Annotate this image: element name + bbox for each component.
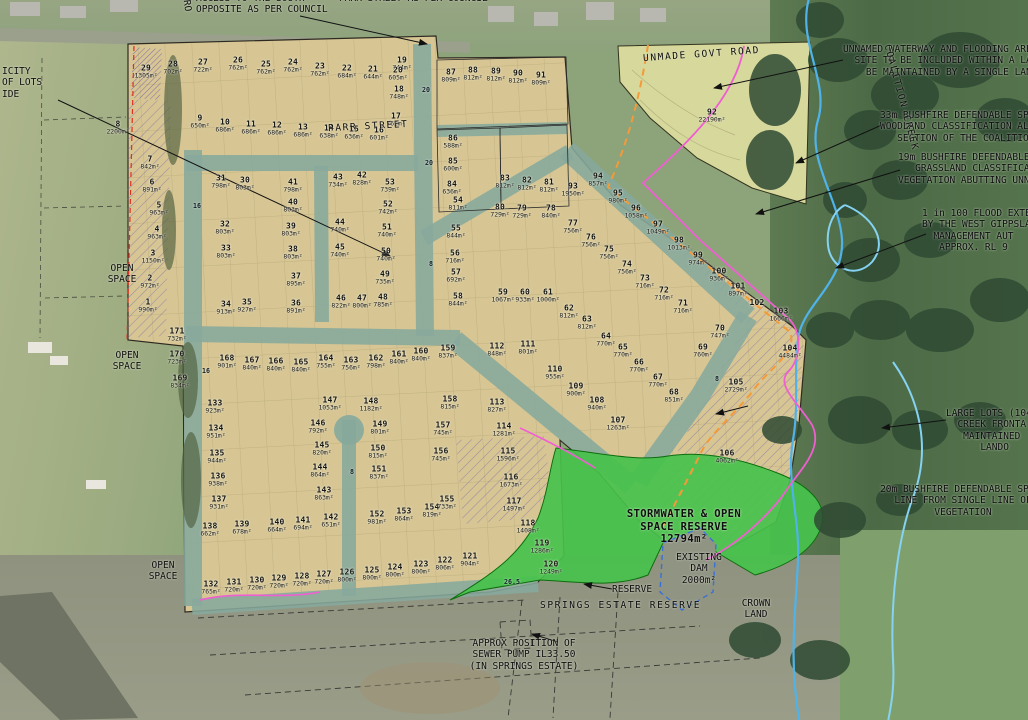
annotation-council-note: ACCESS TO THE SOUTH PARR STREET AS PER C…: [196, 0, 488, 16]
lot-label-119: 1191286m²: [530, 540, 553, 555]
lot-label-80: 80729m²: [490, 204, 509, 219]
lot-label-171: 171732m²: [167, 328, 186, 343]
lot-area: 800m²: [385, 572, 404, 579]
lot-area: 756m²: [617, 269, 636, 276]
lot-label-60: 60933m²: [515, 289, 534, 304]
road-width-label: 8: [715, 375, 719, 383]
annotation-line: PARR STREET: [328, 119, 409, 135]
lot-label-36: 36891m²: [286, 300, 305, 315]
lot-area: 840m²: [291, 367, 310, 374]
lot-label-27: 27722m²: [193, 59, 212, 74]
lot-area: 803m²: [283, 254, 302, 261]
lot-label-54: 54811m²: [448, 197, 467, 212]
lot-label-121: 121904m²: [460, 553, 479, 568]
lot-label-71: 71716m²: [673, 300, 692, 315]
lot-area: 864m²: [310, 472, 329, 479]
lot-label-132: 132765m²: [201, 581, 220, 596]
lot-area: 720m²: [292, 581, 311, 588]
annotation-line: SITE TO BE INCLUDED WITHIN A LARGE: [843, 55, 1028, 66]
lot-area: 803m²: [215, 229, 234, 236]
lot-label-6: 6891m²: [142, 179, 161, 194]
lot-label-109: 109900m²: [566, 383, 585, 398]
annotation-line: OPEN: [113, 350, 142, 361]
lot-label-89: 89812m²: [486, 68, 505, 83]
labels-layer: 1990m²2972m²31150m²4963m²5963m²6891m²784…: [0, 0, 1028, 720]
lot-area: 785m²: [373, 302, 392, 309]
lot-label-144: 144864m²: [310, 464, 329, 479]
lot-label-150: 150815m²: [368, 445, 387, 460]
annotation-open-space-2: OPENSPACE: [113, 350, 142, 373]
lot-label-76: 76756m²: [581, 234, 600, 249]
lot-label-47: 47800m²: [352, 295, 371, 310]
lot-label-8: 82200m²: [106, 121, 129, 136]
lot-label-22: 22684m²: [337, 65, 356, 80]
lot-label-111: 111801m²: [518, 341, 537, 356]
lot-label-107: 1071263m²: [606, 417, 629, 432]
lot-area: 837m²: [438, 353, 457, 360]
lot-area: 891m²: [142, 187, 161, 194]
lot-label-130: 130720m²: [247, 577, 266, 592]
lot-label-145: 145820m²: [312, 442, 331, 457]
annotation-line: LARGE LOTS (104,: [946, 408, 1028, 419]
lot-label-158: 158815m²: [440, 396, 459, 411]
lot-label-21: 21644m²: [363, 66, 382, 81]
lot-area: 800m²: [362, 575, 381, 582]
lot-label-160: 160840m²: [411, 348, 430, 363]
lot-label-79: 79729m²: [512, 205, 531, 220]
lot-area: 1058m²: [624, 213, 647, 220]
lot-label-100: 100936m²: [709, 268, 728, 283]
lot-area: 735m²: [375, 279, 394, 286]
lot-area: 1182m²: [359, 406, 382, 413]
lot-area: 2200m²: [106, 129, 129, 136]
lot-area: 733m²: [437, 504, 456, 511]
lot-label-148: 1481182m²: [359, 398, 382, 413]
lot-area: 745m²: [433, 430, 452, 437]
lot-area: 678m²: [232, 529, 251, 536]
lot-area: 1596m²: [496, 456, 519, 463]
lot-area: 834m²: [170, 383, 189, 390]
lot-label-83: 83812m²: [495, 175, 514, 190]
lot-label-155: 155733m²: [437, 496, 456, 511]
annotation-existing-dam-label: EXISTINGDAM2000m²: [676, 552, 722, 586]
lot-label-9: 9650m²: [190, 115, 209, 130]
lot-area: 963m²: [149, 210, 168, 217]
lot-label-93: 931950m²: [561, 183, 584, 198]
lot-area: 840m²: [266, 366, 285, 373]
lot-label-11: 11686m²: [241, 121, 260, 136]
lot-area: 716m²: [635, 283, 654, 290]
lot-area: 837m²: [369, 474, 388, 481]
lot-area: 716m²: [673, 308, 692, 315]
lot-area: 809m²: [531, 80, 550, 87]
lot-label-134: 134951m²: [206, 425, 225, 440]
lot-label-70: 70747m²: [710, 325, 729, 340]
lot-label-58: 58844m²: [448, 293, 467, 308]
lot-label-115: 1151596m²: [496, 448, 519, 463]
lot-label-61: 611000m²: [536, 289, 559, 304]
annotation-line: MAINTAINED: [946, 431, 1028, 442]
road-width-label: 16: [202, 367, 210, 375]
lot-area: 1286m²: [530, 548, 553, 555]
lot-area: 720m²: [224, 587, 243, 594]
annotation-line: UNNAMED WATERWAY AND FLOODING AREA: [843, 44, 1028, 55]
lot-area: 812m²: [463, 75, 482, 82]
lot-area: 842m²: [140, 164, 159, 171]
lot-area: 723m²: [167, 359, 186, 366]
lot-label-20: 20605m²: [388, 67, 407, 82]
lot-area: 729m²: [512, 213, 531, 220]
lot-label-126: 126800m²: [337, 569, 356, 584]
lot-label-149: 149801m²: [370, 421, 389, 436]
lot-label-72: 72716m²: [654, 287, 673, 302]
lot-area: 798m²: [211, 183, 230, 190]
lot-area: 851m²: [664, 397, 683, 404]
lot-label-50: 50740m²: [376, 248, 395, 263]
lot-label-159: 159837m²: [438, 345, 457, 360]
lot-area: 803m²: [283, 207, 302, 214]
lot-area: 662m²: [200, 531, 219, 538]
lot-label-52: 52742m²: [378, 201, 397, 216]
lot-label-32: 32803m²: [215, 221, 234, 236]
road-width-label: 16: [193, 202, 201, 210]
lot-label-120: 1201249m²: [539, 561, 562, 576]
lot-area: 762m²: [283, 67, 302, 74]
lot-label-74: 74756m²: [617, 261, 636, 276]
annotation-line: RESERVE: [612, 584, 652, 595]
annotation-line: 12794m²: [627, 533, 741, 546]
lot-area: 2729m²: [724, 387, 747, 394]
lot-area: 809m²: [441, 77, 460, 84]
lot-area: 800m²: [337, 577, 356, 584]
lot-label-10: 10686m²: [215, 119, 234, 134]
lot-area: 729m²: [490, 212, 509, 219]
annotation-reserve-label: RESERVE: [612, 584, 652, 595]
annotation-line: CROWN: [742, 598, 771, 609]
lot-label-84: 84636m²: [442, 181, 461, 196]
lot-area: 815m²: [440, 404, 459, 411]
lot-area: 747m²: [710, 333, 729, 340]
lot-area: 812m²: [486, 76, 505, 83]
annotation-crown-land-label: CROWNLAND: [742, 598, 771, 621]
annotation-line: UNMADE GOVT ROAD: [643, 45, 761, 65]
lot-label-95: 95980m²: [608, 190, 627, 205]
annotation-line: LINE FROM SINGLE LINE OF: [880, 495, 1028, 506]
lot-label-59: 591067m²: [491, 289, 514, 304]
lot-area: 923m²: [205, 408, 224, 415]
lot-area: 974m²: [688, 260, 707, 267]
lot-area: 863m²: [314, 495, 333, 502]
annotation-waterway-note: UNNAMED WATERWAY AND FLOODING AREA SITE …: [843, 44, 1028, 78]
lot-label-127: 127720m²: [314, 571, 333, 586]
annotation-line: SPACE: [149, 571, 178, 582]
lot-area: 716m²: [654, 295, 673, 302]
lot-number: 102: [749, 299, 764, 307]
lot-area: 740m²: [330, 227, 349, 234]
road-width-label: 8: [429, 260, 433, 268]
lot-label-18: 18748m²: [389, 86, 408, 101]
lot-label-117: 1171497m²: [502, 498, 525, 513]
lot-area: 745m²: [431, 456, 450, 463]
lot-label-1: 1990m²: [138, 299, 157, 314]
lot-label-31: 31798m²: [211, 175, 230, 190]
lot-label-5: 5963m²: [149, 202, 168, 217]
lot-label-137: 137931m²: [209, 496, 228, 511]
lot-area: 938m²: [208, 481, 227, 488]
lot-area: 4062m²: [715, 458, 738, 465]
lot-area: 605m²: [388, 75, 407, 82]
annotation-sewer-pump-note: APPROX POSITION OFSEWER PUMP IL33.50(IN …: [470, 638, 579, 672]
lot-label-66: 66770m²: [629, 359, 648, 374]
lot-label-53: 53739m²: [380, 179, 399, 194]
annotation-line: OF LOTS: [2, 77, 42, 88]
lot-area: 686m²: [267, 130, 286, 137]
lot-label-99: 99974m²: [688, 252, 707, 267]
annotation-line: 1 in 100 FLOOD EXTEN: [922, 208, 1028, 219]
lot-label-128: 128720m²: [292, 573, 311, 588]
annotation-line: 19m BUSHFIRE DEFENDABLE S: [898, 152, 1028, 163]
lot-label-114: 1141281m²: [492, 423, 515, 438]
lot-area: 756m²: [599, 254, 618, 261]
lot-label-56: 56716m²: [445, 250, 464, 265]
annotation-line: OPEN: [149, 560, 178, 571]
annotation-line: SPACE: [108, 274, 137, 285]
lot-area: 972m²: [140, 283, 159, 290]
lot-label-170: 170723m²: [167, 351, 186, 366]
lot-label-108: 108940m²: [587, 397, 606, 412]
lot-area: 739m²: [380, 187, 399, 194]
lot-label-102: 102: [749, 299, 764, 307]
lot-area: 1263m²: [606, 425, 629, 432]
lot-area: 800m²: [352, 303, 371, 310]
annotation-open-space-3: OPENSPACE: [149, 560, 178, 583]
lot-area: 801m²: [518, 349, 537, 356]
lot-label-35: 35927m²: [237, 299, 256, 314]
annotation-line: 2000m²: [676, 575, 722, 586]
lot-label-62: 62812m²: [559, 305, 578, 320]
lot-area: 951m²: [206, 433, 225, 440]
lot-label-116: 1161673m²: [499, 474, 522, 489]
annotation-line: EXISTING: [676, 552, 722, 563]
lot-area: 792m²: [308, 428, 327, 435]
lot-area: 686m²: [215, 127, 234, 134]
lot-label-78: 78840m²: [541, 205, 560, 220]
lot-area: 895m²: [286, 281, 305, 288]
lot-area: 1408m²: [516, 528, 539, 535]
lot-area: 844m²: [448, 301, 467, 308]
lot-area: 762m²: [256, 69, 275, 76]
lot-area: 762m²: [228, 65, 247, 72]
annotation-line: (IN SPRINGS ESTATE): [470, 661, 579, 672]
lot-area: 748m²: [389, 94, 408, 101]
lot-label-43: 43734m²: [328, 174, 347, 189]
lot-area: 762m²: [310, 71, 329, 78]
lot-label-168: 168901m²: [217, 355, 236, 370]
lot-label-161: 161840m²: [389, 351, 408, 366]
lot-area: 636m²: [344, 134, 363, 141]
lot-area: 644m²: [363, 74, 382, 81]
lot-area: 936m²: [709, 276, 728, 283]
lot-label-48: 48785m²: [373, 294, 392, 309]
lot-label-88: 88812m²: [463, 67, 482, 82]
lot-label-135: 135944m²: [207, 450, 226, 465]
lot-area: 990m²: [138, 307, 157, 314]
lot-label-97: 971049m²: [646, 221, 669, 236]
lot-label-65: 65770m²: [613, 344, 632, 359]
lot-label-113: 113827m²: [487, 399, 506, 414]
annotation-line: OPEN: [108, 263, 137, 274]
annotation-line: BY THE WEST GIPPSLAN: [922, 219, 1028, 230]
lot-label-87: 87809m²: [441, 69, 460, 84]
lot-area: 686m²: [241, 129, 260, 136]
lot-area: 798m²: [366, 363, 385, 370]
lot-area: 812m²: [517, 185, 536, 192]
lot-area: 4484m²: [778, 353, 801, 360]
lot-label-165: 165840m²: [291, 359, 310, 374]
lot-label-46: 46822m²: [331, 295, 350, 310]
lot-label-163: 163756m²: [341, 357, 360, 372]
lot-label-123: 123800m²: [411, 561, 430, 576]
lot-area: 686m²: [293, 132, 312, 139]
annotation-line: VEGETATION: [880, 507, 1028, 518]
lot-label-23: 23762m²: [310, 63, 329, 78]
lot-area: 944m²: [207, 458, 226, 465]
lot-label-40: 40803m²: [283, 199, 302, 214]
lot-area: 720m²: [247, 585, 266, 592]
lot-area: 803m²: [235, 185, 254, 192]
lot-area: 651m²: [321, 522, 340, 529]
lot-area: 756m²: [341, 365, 360, 372]
annotation-bushfire-20m-note: 20m BUSHFIRE DEFENDABLE SPACELINE FROM S…: [880, 484, 1028, 518]
lot-area: 812m²: [539, 187, 558, 194]
lot-area: 734m²: [328, 182, 347, 189]
lot-label-103: 1031666m²: [769, 308, 792, 323]
annotation-line: ICITY: [2, 66, 42, 77]
lot-label-106: 1064062m²: [715, 450, 738, 465]
lot-area: 913m²: [216, 309, 235, 316]
lot-label-45: 45740m²: [330, 244, 349, 259]
lot-area: 692m²: [446, 277, 465, 284]
annotation-line: SPRINGS ESTATE RESERVE: [540, 600, 701, 611]
annotation-line: SPACE RESERVE: [627, 521, 741, 534]
lot-label-12: 12686m²: [267, 122, 286, 137]
lot-label-157: 157745m²: [433, 422, 452, 437]
lot-label-133: 133923m²: [205, 400, 224, 415]
annotation-line: LANDO: [946, 442, 1028, 453]
lot-label-90: 90812m²: [508, 70, 527, 85]
lot-label-139: 139678m²: [232, 521, 251, 536]
lot-area: 864m²: [394, 516, 413, 523]
lot-area: 806m²: [435, 565, 454, 572]
annotation-line: IDE: [2, 89, 42, 100]
lot-label-152: 152981m²: [367, 511, 386, 526]
lot-area: 756m²: [581, 242, 600, 249]
lot-label-82: 82812m²: [517, 177, 536, 192]
lot-area: 1049m²: [646, 229, 669, 236]
lot-label-86: 86588m²: [443, 135, 462, 150]
lot-label-118: 1181408m²: [516, 520, 539, 535]
lot-area: 812m²: [577, 324, 596, 331]
lot-area: 800m²: [411, 569, 430, 576]
lot-area: 812m²: [559, 313, 578, 320]
lot-area: 702m²: [163, 69, 182, 76]
lot-label-33: 33803m²: [216, 245, 235, 260]
lot-area: 1067m²: [491, 297, 514, 304]
annotation-line: APPROX POSITION OF: [470, 638, 579, 649]
lot-area: 1013m²: [667, 245, 690, 252]
lot-area: 803m²: [281, 231, 300, 238]
annotation-line: MANAGEMENT AUT: [922, 231, 1028, 242]
lot-label-101: 101897m²: [728, 283, 747, 298]
lot-label-164: 164755m²: [316, 355, 335, 370]
lot-area: 716m²: [445, 258, 464, 265]
road-width-label: 20: [425, 159, 433, 167]
lot-area: 812m²: [495, 183, 514, 190]
lot-area: 755m²: [316, 363, 335, 370]
lot-label-51: 51740m²: [377, 224, 396, 239]
lot-label-85: 85600m²: [443, 158, 462, 173]
lot-label-28: 28702m²: [163, 61, 182, 76]
lot-label-131: 131720m²: [224, 579, 243, 594]
lot-area: 770m²: [613, 352, 632, 359]
lot-area: 1281m²: [492, 431, 515, 438]
annotation-line: VEGETATION ABUTTING UNNA: [898, 175, 1028, 186]
lot-label-169: 169834m²: [170, 375, 189, 390]
lot-label-24: 24762m²: [283, 59, 302, 74]
lot-area: 801m²: [370, 429, 389, 436]
lot-area: 694m²: [293, 525, 312, 532]
lot-area: 927m²: [237, 307, 256, 314]
lot-area: 770m²: [629, 367, 648, 374]
lot-label-73: 73716m²: [635, 275, 654, 290]
lot-area: 840m²: [411, 356, 430, 363]
lot-area: 812m²: [508, 78, 527, 85]
lot-area: 1673m²: [499, 482, 522, 489]
lot-label-77: 77756m²: [563, 220, 582, 235]
lot-label-162: 162798m²: [366, 355, 385, 370]
lot-label-68: 68851m²: [664, 389, 683, 404]
lot-area: 1666m²: [769, 316, 792, 323]
annotation-line: OPPOSITE AS PER COUNCIL: [196, 4, 488, 15]
lot-area: 811m²: [448, 205, 467, 212]
lot-label-146: 146792m²: [308, 420, 327, 435]
lot-area: 840m²: [541, 213, 560, 220]
lot-label-140: 140664m²: [267, 519, 286, 534]
lot-area: 904m²: [460, 561, 479, 568]
lot-area: 732m²: [167, 336, 186, 343]
lot-area: 684m²: [337, 73, 356, 80]
lot-label-63: 63812m²: [577, 316, 596, 331]
lot-label-151: 151837m²: [369, 466, 388, 481]
lot-area: 931m²: [209, 504, 228, 511]
lot-area: 1150m²: [141, 258, 164, 265]
lot-label-138: 138662m²: [200, 523, 219, 538]
road-width-label: 26.5: [504, 578, 520, 586]
annotation-large-lots-note: LARGE LOTS (104, CREEK FRONTA MAINTAINED…: [946, 408, 1028, 454]
lot-label-41: 41798m²: [283, 179, 302, 194]
annotation-lots-note-left: ICITYOF LOTSIDE: [2, 66, 42, 100]
lot-area: 844m²: [446, 233, 465, 240]
lot-area: 900m²: [566, 391, 585, 398]
lot-label-44: 44740m²: [330, 219, 349, 234]
lot-area: 822m²: [331, 303, 350, 310]
road-width-label: 8: [350, 468, 354, 476]
lot-area: 588m²: [443, 143, 462, 150]
lot-area: 760m²: [693, 352, 712, 359]
lot-label-94: 94857m²: [588, 173, 607, 188]
lot-area: 720m²: [269, 583, 288, 590]
lot-area: 664m²: [267, 527, 286, 534]
